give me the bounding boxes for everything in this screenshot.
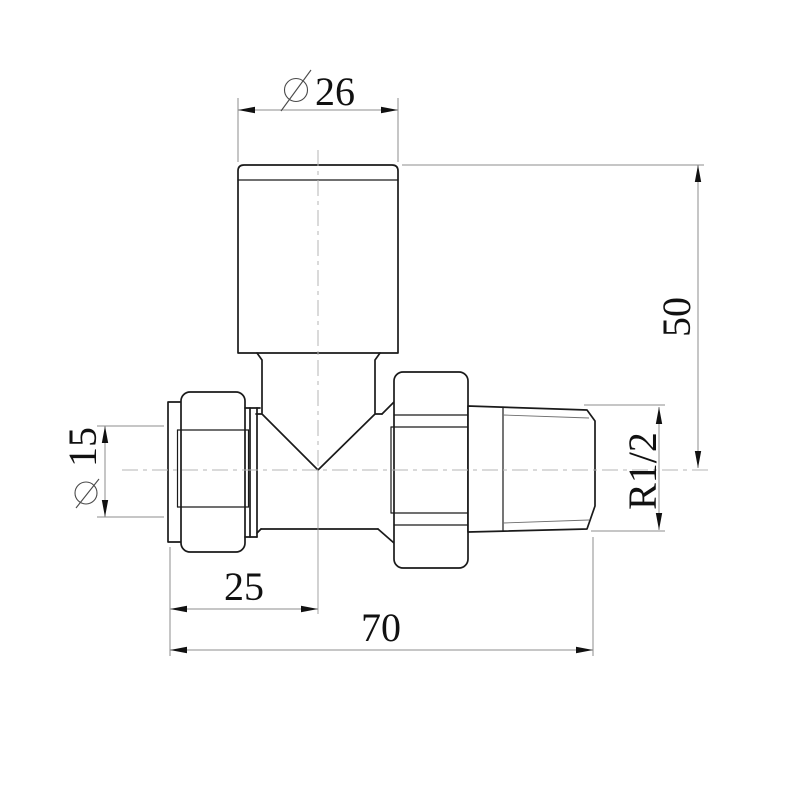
dimension-thread-size: R1/2 [584, 405, 665, 531]
arrowhead-right [381, 107, 398, 113]
arrowhead-right [301, 606, 318, 612]
tailpiece-tube [168, 402, 181, 542]
arrowhead-right [576, 647, 593, 653]
valve-technical-drawing: 26 50 R1/2 15 25 [0, 0, 800, 800]
arrowhead-up [656, 407, 662, 424]
drawing-canvas: 26 50 R1/2 15 25 [0, 0, 800, 800]
arrowhead-down [695, 451, 701, 468]
dimension-center-offset: 25 [170, 564, 318, 612]
dimension-text-cap-diameter: 26 [315, 69, 355, 114]
arrowhead-up [695, 165, 701, 182]
dimension-text-length: 70 [361, 605, 401, 650]
valve-neck-right-edge [375, 353, 380, 413]
arrowhead-down [656, 513, 662, 530]
dimension-text-offset: 25 [224, 564, 264, 609]
arrowhead-left [170, 606, 187, 612]
union-cone-top [382, 401, 395, 414]
arrowhead-left [170, 647, 187, 653]
arrowhead-down [102, 500, 108, 517]
diameter-symbol-slash [281, 70, 311, 111]
valve-body-outline [168, 165, 595, 568]
valve-neck-left-edge [257, 353, 262, 413]
dimension-text-inlet: 15 [60, 427, 105, 467]
compression-nut [181, 392, 245, 552]
dimension-cap-diameter: 26 [238, 69, 398, 162]
male-thread [468, 406, 595, 532]
dimension-text-thread: R1/2 [620, 432, 665, 510]
valve-seat-vee [256, 414, 382, 470]
arrowhead-left [238, 107, 255, 113]
dimension-inlet-diameter: 15 [60, 426, 164, 517]
dimension-text-height: 50 [654, 297, 699, 337]
union-cone-bottom [378, 529, 394, 543]
